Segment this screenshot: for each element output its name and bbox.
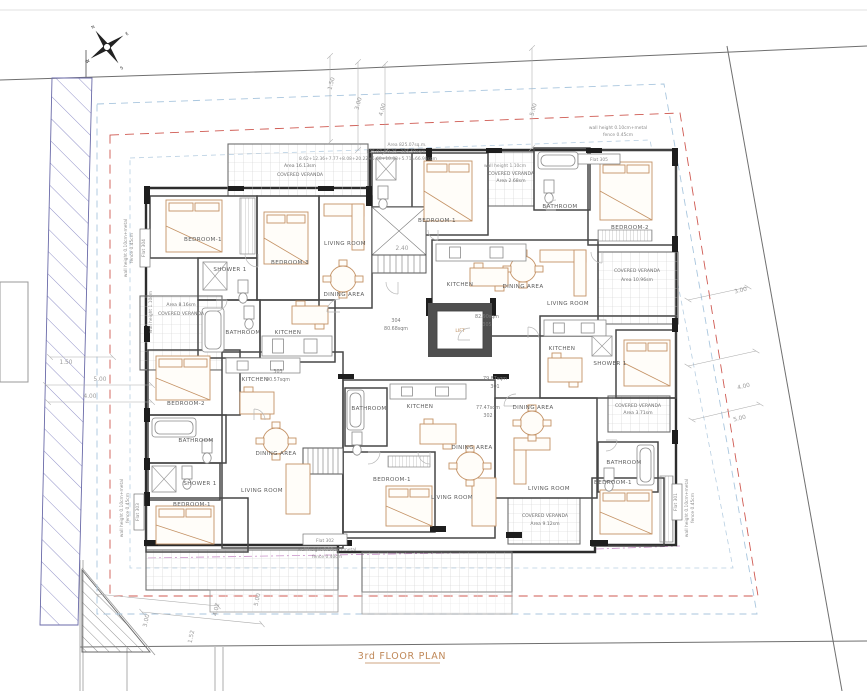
hob bbox=[436, 387, 449, 396]
wall-height-note: fence 0.45cm bbox=[690, 493, 696, 523]
building-layer bbox=[140, 144, 678, 614]
toilet-tank bbox=[244, 306, 254, 319]
room-label: DINING AREA bbox=[323, 292, 364, 298]
flat-area-label: 305 bbox=[482, 322, 491, 328]
wardrobe bbox=[598, 230, 652, 241]
room-label: SHOWER 1 bbox=[593, 361, 626, 367]
room-label: DINING AREA bbox=[451, 445, 492, 451]
bed-pillow bbox=[159, 509, 184, 517]
bed-pillow bbox=[389, 489, 408, 497]
dimension-label: 4.00 bbox=[84, 394, 97, 400]
toilet-tank bbox=[378, 186, 388, 199]
drawing-sheet: 1.503.004.005.003.004.005.001.505.004.00… bbox=[0, 0, 867, 691]
room-label: BEDROOM-2 bbox=[167, 401, 205, 407]
compass-letter: S bbox=[119, 65, 124, 71]
flat-tag-label: Flat 302 bbox=[316, 538, 334, 544]
wall-height-note: wall height 0.10cm+metal bbox=[298, 547, 356, 553]
veranda-label: COVERED VERANDA bbox=[522, 513, 569, 519]
chair bbox=[272, 422, 280, 428]
table bbox=[420, 424, 456, 444]
sink bbox=[450, 247, 461, 258]
room-label: BEDROOM-1 bbox=[184, 237, 222, 243]
dimension-label: 3.00 bbox=[143, 614, 152, 628]
flat-area-label: 90.57sqm bbox=[266, 377, 290, 383]
wall-segment bbox=[144, 458, 150, 470]
dimension-label: 5.00 bbox=[529, 102, 538, 116]
bed-pillow bbox=[184, 359, 207, 367]
wall-segment bbox=[318, 186, 334, 191]
toilet-bowl bbox=[239, 293, 247, 303]
dimension-label: 5.00 bbox=[733, 415, 747, 424]
bed-pillow bbox=[603, 493, 625, 501]
table bbox=[292, 306, 328, 324]
dimension-label: 4.00 bbox=[737, 383, 751, 392]
chair bbox=[513, 420, 521, 426]
wall-height-note: wall height 0.10cm+metal bbox=[589, 125, 647, 131]
road-hatch-corner bbox=[82, 570, 150, 652]
wall-height-note: fence 0.45cm bbox=[129, 233, 135, 263]
bed-pillow bbox=[449, 164, 469, 172]
bathtub-inner bbox=[541, 155, 575, 166]
room-label: DINING AREA bbox=[255, 451, 296, 457]
veranda-label: COVERED VERANDA bbox=[488, 171, 535, 177]
room-label: KITCHEN bbox=[549, 346, 576, 352]
bed-pillow bbox=[648, 343, 667, 351]
chair bbox=[288, 438, 296, 444]
dimension-label: 1.50 bbox=[327, 76, 336, 90]
wall-segment bbox=[506, 532, 522, 538]
flat-area-label: 77.47sqm bbox=[476, 405, 500, 411]
chair bbox=[528, 435, 536, 441]
room-label: BEDROOM-1 bbox=[173, 502, 211, 508]
sofa bbox=[286, 464, 310, 514]
site-boundary-line bbox=[727, 46, 842, 691]
veranda-label: Area 3.71sm bbox=[623, 410, 653, 416]
chair bbox=[569, 382, 578, 387]
veranda-label: Area 10.96sm bbox=[621, 277, 654, 283]
flat-tag-label: Flat 303 bbox=[135, 503, 141, 521]
flat-tag-label: Flat 301 bbox=[673, 493, 679, 511]
wall-segment bbox=[672, 236, 678, 252]
wall-segment bbox=[672, 318, 678, 332]
chair bbox=[543, 420, 551, 426]
room-label: LIVING ROOM bbox=[241, 488, 283, 494]
dimension-tick bbox=[689, 418, 696, 422]
chair bbox=[466, 480, 474, 486]
flat-area-label: 301 bbox=[490, 384, 499, 390]
dimension-label: 4.00 bbox=[378, 102, 387, 116]
wall-height-note: fence 0.45cm bbox=[125, 493, 131, 523]
dimension-line bbox=[692, 404, 760, 420]
room-label: SHOWER 1 bbox=[213, 267, 246, 273]
veranda-extension bbox=[362, 592, 512, 614]
room-label: SHOWER 1 bbox=[183, 481, 216, 487]
room-label: BEDROOM-1 bbox=[594, 480, 632, 486]
lift-label: LIFT bbox=[455, 328, 464, 334]
wall-height-note: wall height 0.10cm+metal bbox=[684, 479, 690, 537]
plan-title: 3rd FLOOR PLAN bbox=[358, 651, 446, 662]
dining-table bbox=[456, 452, 484, 480]
toilet-bowl bbox=[545, 193, 553, 203]
dimension-tick bbox=[685, 364, 692, 368]
flat-area-label: 304 bbox=[391, 318, 400, 324]
chair bbox=[552, 353, 561, 358]
room-label: BEDROOM-1 bbox=[373, 477, 411, 483]
room-label: DINING AREA bbox=[512, 405, 553, 411]
bed-pillow bbox=[186, 509, 211, 517]
bed-pillow bbox=[195, 203, 219, 211]
covered-veranda bbox=[146, 550, 338, 590]
room-label: BEDROOM-3 bbox=[271, 260, 309, 266]
toilet-bowl bbox=[245, 319, 253, 329]
chair bbox=[483, 463, 491, 469]
toilet-bowl bbox=[379, 199, 387, 209]
road-hatch-strip bbox=[40, 78, 92, 625]
covered-veranda bbox=[362, 552, 512, 592]
veranda-label: COVERED VERANDA bbox=[614, 268, 661, 274]
bed-pillow bbox=[159, 359, 182, 367]
dimension-tick bbox=[757, 402, 764, 406]
veranda-label: COVERED VERANDA bbox=[158, 311, 205, 317]
wall-height-note: wall height 1.10cm bbox=[148, 291, 154, 333]
flat-area-label: 79.87sqm bbox=[483, 376, 507, 382]
wall-height-note: wall height 0.10cm+metal bbox=[119, 479, 125, 537]
dining-table bbox=[330, 266, 356, 292]
bed-pillow bbox=[603, 165, 625, 173]
room-label: DINING AREA bbox=[502, 284, 543, 290]
dimension-label: 3.00 bbox=[354, 96, 363, 110]
flat-area-label: 80.68sqm bbox=[384, 326, 408, 332]
sofa bbox=[574, 250, 586, 296]
chair bbox=[244, 387, 253, 392]
sink bbox=[273, 339, 284, 353]
dimension-label: 2.40 bbox=[396, 246, 409, 252]
wall-segment bbox=[672, 148, 678, 166]
room-label: LIVING ROOM bbox=[431, 495, 473, 501]
wall-height-note: wall height 0.10cm+metal bbox=[123, 219, 129, 277]
room-label: KITCHEN bbox=[242, 377, 269, 383]
dimension-label: 5.00 bbox=[94, 377, 107, 383]
bed-pillow bbox=[627, 493, 649, 501]
chair bbox=[323, 276, 331, 282]
bed-pillow bbox=[627, 343, 646, 351]
floor-plan: 1.503.004.005.003.004.005.001.505.004.00… bbox=[0, 0, 867, 691]
wall-segment bbox=[590, 540, 608, 546]
chair bbox=[315, 324, 324, 329]
room-label: BATHROOM bbox=[351, 406, 386, 412]
room-label: BATHROOM bbox=[542, 204, 577, 210]
wardrobe bbox=[388, 456, 430, 467]
wall-segment bbox=[144, 186, 150, 204]
wall-segment bbox=[672, 430, 678, 444]
toilet-bowl bbox=[203, 453, 211, 463]
flat-area-label: 302 bbox=[483, 413, 492, 419]
compass-letter: E bbox=[124, 31, 129, 37]
site-boundary-line bbox=[320, 46, 867, 70]
toilet-tank bbox=[544, 180, 554, 193]
hob bbox=[490, 247, 503, 258]
bed-pillow bbox=[169, 203, 193, 211]
flat-area-label: 82.90sqm bbox=[475, 314, 499, 320]
flat-tag-label: Flat 304 bbox=[141, 239, 147, 257]
adjacent-structure bbox=[0, 282, 28, 382]
wall-height-note: wall height 1.10cm bbox=[484, 163, 526, 169]
dimension-line bbox=[688, 351, 756, 366]
bathtub-inner bbox=[155, 421, 193, 434]
wardrobe bbox=[240, 198, 255, 254]
area-calculation-text: Area 825.07sq.m. bbox=[387, 142, 426, 148]
wall-segment bbox=[486, 148, 502, 153]
room-label: KITCHEN bbox=[407, 404, 434, 410]
hob bbox=[581, 323, 594, 333]
veranda-label: Area 16.13sm bbox=[284, 163, 317, 169]
wall-segment bbox=[338, 374, 354, 379]
wall-segment bbox=[228, 186, 244, 191]
veranda-extension bbox=[210, 590, 338, 612]
chair bbox=[261, 414, 270, 419]
dimension-label: 1.50 bbox=[60, 360, 73, 366]
veranda-label: COVERED VERANDA bbox=[615, 403, 662, 409]
veranda-label: Area 9.12sm bbox=[530, 521, 560, 527]
chair bbox=[424, 419, 433, 424]
compass-letter: W bbox=[84, 58, 90, 64]
toilet-tank bbox=[352, 432, 362, 445]
chair bbox=[474, 263, 483, 268]
bathtub-inner bbox=[205, 311, 221, 349]
dimension-label: 3.00 bbox=[734, 287, 748, 296]
room-label: LIVING ROOM bbox=[528, 486, 570, 492]
wall-segment bbox=[586, 148, 602, 153]
chair bbox=[296, 301, 305, 306]
wall-segment bbox=[144, 492, 150, 506]
hob bbox=[304, 339, 317, 353]
staircase bbox=[372, 255, 426, 273]
north-arrow-icon: NESW bbox=[70, 10, 144, 85]
wardrobe bbox=[660, 476, 673, 542]
flat-tag-label: Flat 305 bbox=[590, 157, 608, 163]
toilet-tank bbox=[238, 280, 248, 293]
dimension-label: 4.02 bbox=[213, 603, 222, 617]
wall-segment bbox=[366, 186, 372, 206]
wall-height-note: fence 0.40cm bbox=[312, 554, 342, 560]
wall-segment bbox=[430, 526, 446, 532]
chair bbox=[339, 260, 347, 266]
toilet-bowl bbox=[353, 445, 361, 455]
chair bbox=[449, 463, 457, 469]
room-label: BEDROOM-2 bbox=[611, 225, 649, 231]
room-label: BEDROOM-1 bbox=[418, 218, 456, 224]
chair bbox=[256, 438, 264, 444]
bed-pillow bbox=[627, 165, 649, 173]
dimension-tick bbox=[685, 298, 692, 302]
flat-area-label: 303 bbox=[273, 369, 282, 375]
toilet-tank bbox=[182, 466, 192, 479]
covered-veranda bbox=[598, 252, 678, 324]
bed-pillow bbox=[427, 164, 447, 172]
chair bbox=[355, 276, 363, 282]
compass-letter: N bbox=[90, 24, 95, 30]
dimension-line bbox=[96, 594, 218, 606]
bathtub-inner bbox=[640, 448, 651, 482]
dining-table bbox=[520, 411, 544, 435]
room-label: BATHROOM bbox=[178, 438, 213, 444]
veranda-label: Area 8.16sm bbox=[166, 302, 196, 308]
site-boundary-line bbox=[0, 70, 320, 80]
dimension-label: 1.52 bbox=[188, 630, 197, 644]
table bbox=[548, 358, 582, 382]
table bbox=[240, 392, 274, 414]
sink bbox=[237, 361, 248, 370]
hob bbox=[270, 361, 283, 370]
dimension-tick bbox=[753, 349, 760, 353]
bed-pillow bbox=[267, 215, 285, 223]
chair bbox=[535, 266, 543, 272]
sofa bbox=[472, 478, 496, 526]
area-calculation-text: 825.07 x 0.25=195.50sqm bbox=[367, 149, 426, 155]
bed-pillow bbox=[410, 489, 429, 497]
area-calculation-text: 8.62+12.36+7.77+8.08+20.22+5.68+10.83+5.… bbox=[299, 156, 437, 162]
veranda-label: COVERED VERANDA bbox=[277, 172, 324, 178]
room-label: KITCHEN bbox=[447, 282, 474, 288]
room-label: LIVING ROOM bbox=[547, 301, 589, 307]
sink bbox=[401, 387, 412, 396]
room-label: BATHROOM bbox=[225, 330, 260, 336]
room-label: KITCHEN bbox=[275, 330, 302, 336]
wall-segment bbox=[144, 408, 150, 422]
site-boundary-line bbox=[80, 641, 867, 647]
veranda-label: Area 2.68sm bbox=[496, 178, 526, 184]
bed-pillow bbox=[287, 215, 305, 223]
room-label: LIVING ROOM bbox=[324, 241, 366, 247]
room-label: BATHROOM bbox=[606, 460, 641, 466]
wall-height-note: fence 0.45cm bbox=[603, 132, 633, 138]
covered-veranda bbox=[228, 144, 368, 196]
sink bbox=[553, 323, 564, 333]
